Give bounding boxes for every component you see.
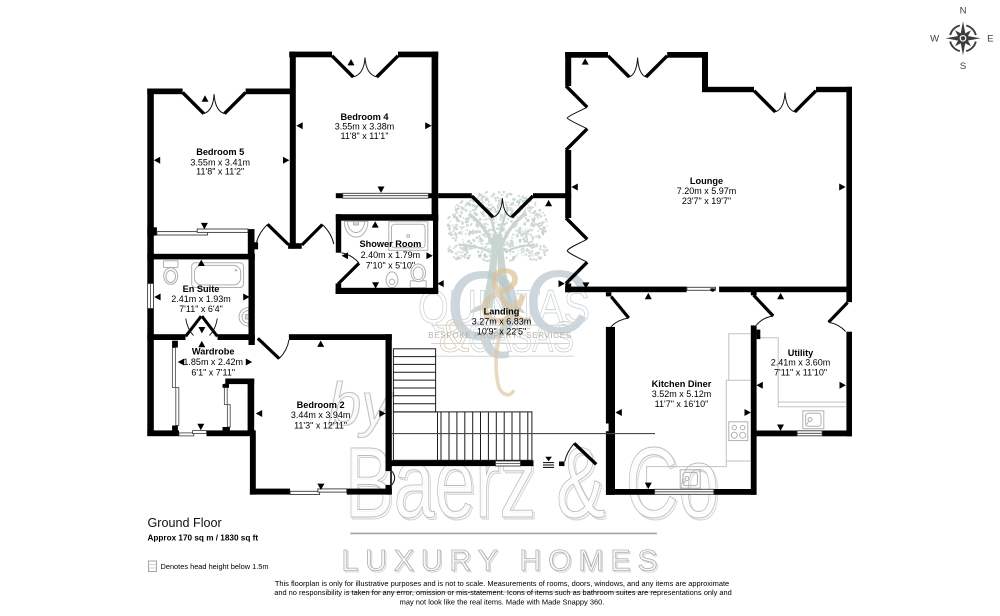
svg-text:Utility: Utility	[788, 348, 814, 358]
svg-text:Kitchen Diner: Kitchen Diner	[652, 379, 712, 389]
svg-text:E: E	[987, 34, 993, 45]
svg-text:11'8" x 11'1": 11'8" x 11'1"	[340, 131, 388, 141]
svg-text:7'10" x 5'10": 7'10" x 5'10"	[366, 261, 415, 271]
svg-text:Bedroom 5: Bedroom 5	[196, 147, 244, 157]
svg-text:Wardrobe: Wardrobe	[192, 347, 235, 357]
svg-text:1.85m x 2.42m: 1.85m x 2.42m	[183, 357, 243, 367]
svg-text:Ground Floor: Ground Floor	[148, 516, 222, 530]
svg-text:23'7" x 19'7": 23'7" x 19'7"	[682, 196, 731, 206]
svg-text:Bedroom 4: Bedroom 4	[341, 112, 390, 122]
svg-text:Denotes head height below 1.5m: Denotes head height below 1.5m	[161, 562, 269, 571]
svg-text:S: S	[960, 61, 966, 72]
svg-text:LUXURY HOMES: LUXURY HOMES	[342, 545, 665, 578]
svg-text:11'7" x 16'10": 11'7" x 16'10"	[655, 399, 709, 409]
svg-text:3.52m x 5.12m: 3.52m x 5.12m	[652, 389, 712, 399]
svg-text:7'11" x 6'4": 7'11" x 6'4"	[179, 304, 223, 314]
svg-text:W: W	[930, 34, 939, 45]
svg-text:Approx 170 sq m / 1830 sq ft: Approx 170 sq m / 1830 sq ft	[148, 534, 259, 543]
svg-text:7'11" x 11'10": 7'11" x 11'10"	[774, 367, 827, 377]
svg-text:may not look like the real ite: may not look like the real items. Made w…	[400, 598, 605, 607]
svg-text:2.41m x 1.93m: 2.41m x 1.93m	[171, 294, 231, 304]
svg-text:Bedroom 2: Bedroom 2	[297, 400, 345, 410]
svg-text:This floorplan is only for ill: This floorplan is only for illustrative …	[275, 579, 729, 588]
svg-text:6'1" x 7'11": 6'1" x 7'11"	[191, 367, 235, 377]
svg-text:En Suite: En Suite	[183, 284, 220, 294]
svg-text:7.20m x 5.97m: 7.20m x 5.97m	[677, 186, 737, 196]
svg-text:2.40m x 1.79m: 2.40m x 1.79m	[361, 250, 421, 260]
svg-text:Shower Room: Shower Room	[360, 239, 422, 249]
svg-text:2.41m x 3.60m: 2.41m x 3.60m	[771, 358, 831, 368]
svg-text:3.27m x 6.83m: 3.27m x 6.83m	[472, 316, 532, 326]
svg-text:N: N	[960, 6, 967, 17]
svg-text:10'9" x 22'5": 10'9" x 22'5"	[477, 326, 526, 336]
svg-text:3.44m x 3.94m: 3.44m x 3.94m	[291, 410, 351, 420]
svg-text:11'3" x 12'11": 11'3" x 12'11"	[294, 421, 347, 431]
svg-text:Landing: Landing	[484, 307, 520, 317]
svg-text:and no responsibility is taken: and no responsibility is taken for any e…	[274, 588, 732, 597]
svg-text:3.55m x 3.38m: 3.55m x 3.38m	[335, 122, 395, 132]
svg-text:11'8" x 11'2": 11'8" x 11'2"	[196, 167, 244, 177]
svg-text:Lounge: Lounge	[690, 176, 723, 186]
